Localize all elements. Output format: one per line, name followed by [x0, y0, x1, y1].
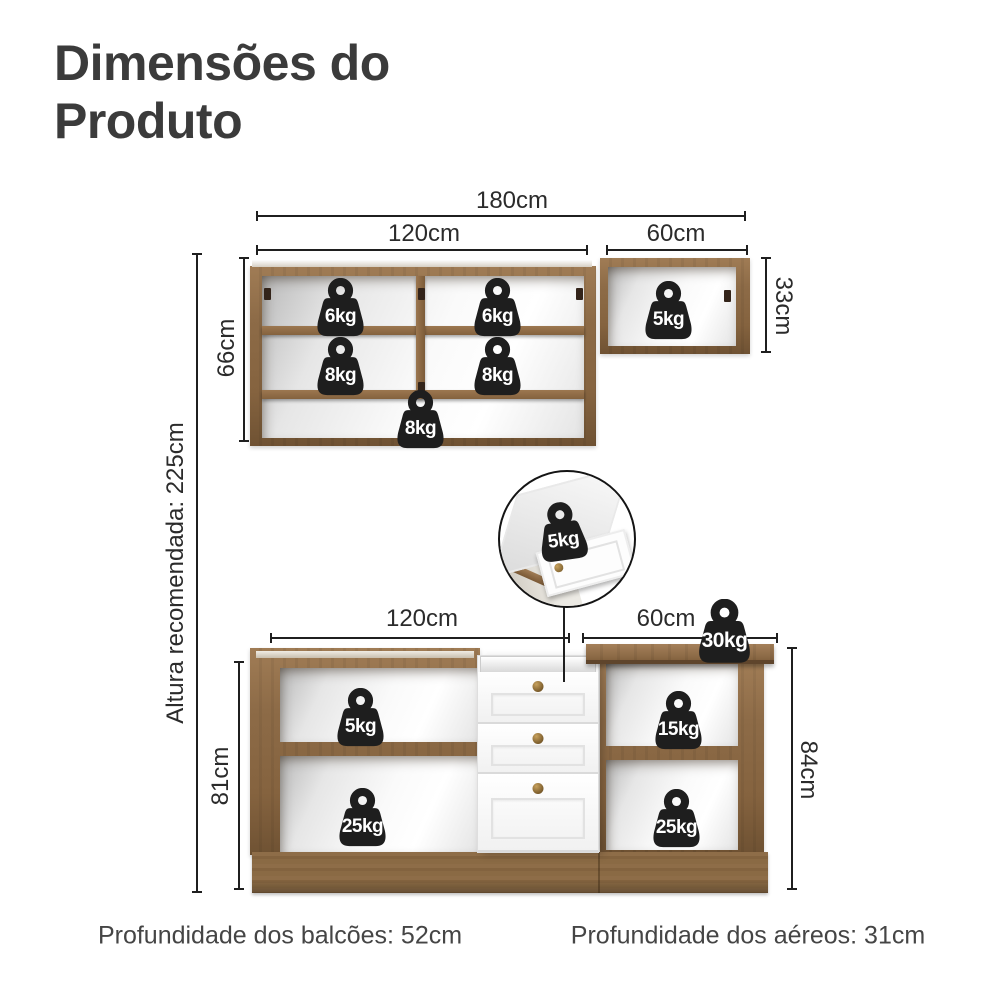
lower-right-height-label: 84cm: [794, 741, 822, 800]
upper-total-width-line: [256, 215, 746, 217]
weight-label: 6kg: [469, 306, 526, 328]
drawer-detail-circle: 5kg: [498, 470, 636, 608]
upper-left-width-line: [256, 249, 588, 251]
plinth: [252, 852, 768, 893]
weight-label: 15kg: [650, 719, 707, 741]
upper-right-width-label: 60cm: [647, 220, 706, 248]
hinge: [418, 288, 425, 300]
hinge: [576, 288, 583, 300]
drawer-knob: [533, 681, 544, 692]
weight-label: 5kg: [640, 309, 697, 331]
upper-right-height-label: 33cm: [769, 277, 797, 336]
page-title: Dimensões do Produto: [54, 34, 524, 150]
drawer: [478, 724, 598, 774]
drawer-front-panel: [491, 745, 585, 766]
weight-label: 6kg: [312, 306, 369, 328]
weight-badge: 8kg: [469, 337, 526, 400]
weight-badge: 5kg: [332, 688, 389, 751]
open-top-rim: [256, 651, 474, 658]
recommended-height-line: [196, 253, 198, 893]
weight-badge: 30kg: [693, 599, 756, 668]
lower-left-height-label: 81cm: [207, 747, 235, 806]
drawer-knob: [533, 733, 544, 744]
lower-right-width-label: 60cm: [637, 605, 696, 633]
counters-depth-text: Profundidade dos balcões: 52cm: [98, 922, 462, 951]
weight-label: 25kg: [334, 816, 391, 838]
recommended-height-label: Altura recomendada: 225cm: [162, 422, 190, 724]
drawer-front-panel: [491, 798, 585, 839]
drawer-cavity: [480, 656, 596, 673]
detail-connector-line: [563, 602, 565, 682]
weight-badge: 25kg: [334, 788, 391, 851]
lower-left-height-line: [238, 661, 240, 890]
upper-left-height-line: [243, 257, 245, 442]
hinge: [724, 290, 731, 302]
lower-left-width-label: 120cm: [386, 605, 458, 633]
weight-label: 5kg: [332, 716, 389, 738]
weight-badge: 6kg: [312, 278, 369, 341]
weight-badge: 8kg: [392, 390, 449, 453]
weight-badge: 15kg: [650, 691, 707, 754]
lower-right-height-line: [791, 647, 793, 890]
drawer-front-panel: [491, 693, 585, 716]
upper-total-width-label: 180cm: [476, 187, 548, 215]
upper-left-width-label: 120cm: [388, 220, 460, 248]
hinge: [264, 288, 271, 300]
weight-label: 25kg: [648, 817, 705, 839]
wall-cabinets-depth-text: Profundidade dos aéreos: 31cm: [571, 922, 925, 951]
upper-left-height-label: 66cm: [213, 319, 241, 378]
weight-label: 30kg: [693, 629, 756, 653]
weight-label: 8kg: [392, 418, 449, 440]
upper-cabinet-top-edge: [252, 260, 592, 267]
upper-right-height-line: [765, 257, 767, 353]
weight-badge: 6kg: [469, 278, 526, 341]
weight-badge: 5kg: [640, 281, 697, 344]
drawer-knob: [533, 783, 544, 794]
lower-left-width-line: [270, 637, 570, 639]
weight-badge: 5kg: [530, 498, 595, 568]
weight-label: 8kg: [469, 365, 526, 387]
drawer: [478, 774, 598, 852]
weight-label: 8kg: [312, 365, 369, 387]
product-dimensions-diagram: Dimensões do Produto 180cm 120cm 60cm 66…: [0, 0, 1000, 1000]
upper-right-width-line: [606, 249, 748, 251]
weight-badge: 25kg: [648, 789, 705, 852]
drawer: [478, 672, 598, 724]
weight-badge: 8kg: [312, 337, 369, 400]
drawer-tower: [478, 656, 598, 852]
